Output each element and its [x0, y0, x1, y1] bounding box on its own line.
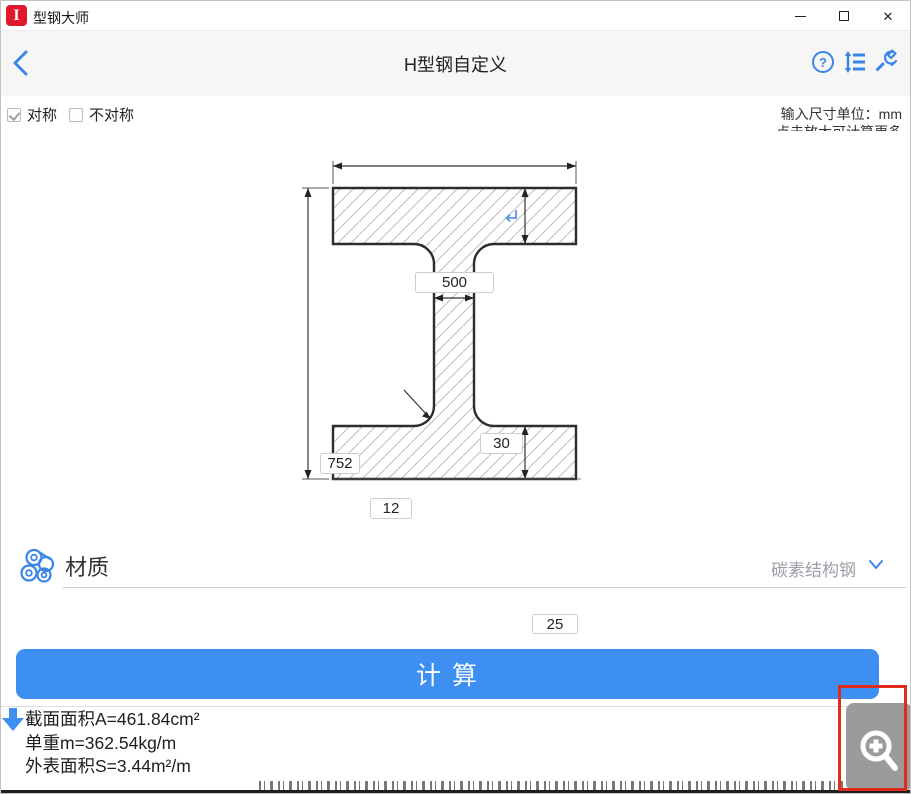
- app-window: I 型钢大师 ✕ H型钢自定义 ?: [0, 0, 911, 794]
- down-arrow-icon: [2, 708, 24, 732]
- svg-text:?: ?: [819, 55, 827, 70]
- minimize-button[interactable]: [778, 1, 822, 31]
- width-input[interactable]: [415, 272, 494, 293]
- dim-height: [302, 188, 329, 479]
- page-title: H型钢自定义: [1, 51, 910, 77]
- chevron-down-icon[interactable]: [868, 559, 884, 571]
- material-underline: [63, 587, 906, 588]
- app-logo-icon: I: [6, 5, 27, 26]
- close-icon: ✕: [883, 10, 894, 23]
- wrench-icon: [874, 49, 900, 75]
- clipped-text-row: [259, 781, 894, 790]
- beam-drawing-area: [1, 131, 911, 531]
- options-row: 对称 不对称 输入尺寸单位：mm 点击放大可计算更多: [1, 96, 910, 136]
- minimize-icon: [795, 16, 806, 17]
- results-separator: [1, 706, 910, 707]
- title-bar: I 型钢大师 ✕: [1, 1, 910, 31]
- web-thickness-input[interactable]: [480, 433, 523, 454]
- dim-fillet-leader: [404, 390, 431, 419]
- asymmetric-label: 不对称: [89, 104, 134, 125]
- fillet-radius-input[interactable]: [370, 498, 412, 519]
- checkbox-checked-icon: [7, 108, 21, 122]
- maximize-button[interactable]: [822, 1, 866, 31]
- material-label: 材质: [65, 550, 109, 582]
- symmetric-label: 对称: [27, 104, 57, 125]
- material-value[interactable]: 碳素结构钢: [771, 556, 856, 581]
- steel-coils-icon: [19, 545, 59, 585]
- zoom-magnifier-button[interactable]: [846, 703, 911, 791]
- help-button[interactable]: ?: [810, 49, 836, 75]
- flange-thickness-input[interactable]: [532, 614, 578, 634]
- magnifier-plus-icon: [856, 727, 902, 781]
- maximize-icon: [839, 11, 849, 21]
- material-section: 材质 碳素结构钢: [1, 539, 910, 591]
- result-surface: 外表面积S=3.44m²/m: [25, 755, 200, 779]
- height-input[interactable]: [320, 453, 360, 474]
- help-icon: ?: [810, 49, 836, 75]
- results-panel: 截面面积A=461.84cm² 单重m=362.54kg/m 外表面积S=3.4…: [25, 708, 200, 779]
- close-button[interactable]: ✕: [866, 1, 910, 31]
- asymmetric-checkbox[interactable]: 不对称: [69, 104, 134, 125]
- bottom-divider: [1, 790, 910, 793]
- page-header: H型钢自定义 ?: [1, 31, 910, 96]
- calculate-button[interactable]: 计 算: [16, 649, 879, 699]
- checkbox-unchecked-icon: [69, 108, 83, 122]
- list-order-button[interactable]: [842, 49, 868, 75]
- app-title: 型钢大师: [33, 8, 89, 28]
- settings-button[interactable]: [874, 49, 900, 75]
- symmetric-checkbox[interactable]: 对称: [7, 104, 57, 125]
- beam-outline: [333, 188, 576, 479]
- result-area: 截面面积A=461.84cm²: [25, 708, 200, 732]
- sort-list-icon: [842, 49, 868, 75]
- dim-width: [333, 161, 576, 184]
- result-weight: 单重m=362.54kg/m: [25, 732, 200, 756]
- unit-hint: 输入尺寸单位：mm: [781, 104, 902, 124]
